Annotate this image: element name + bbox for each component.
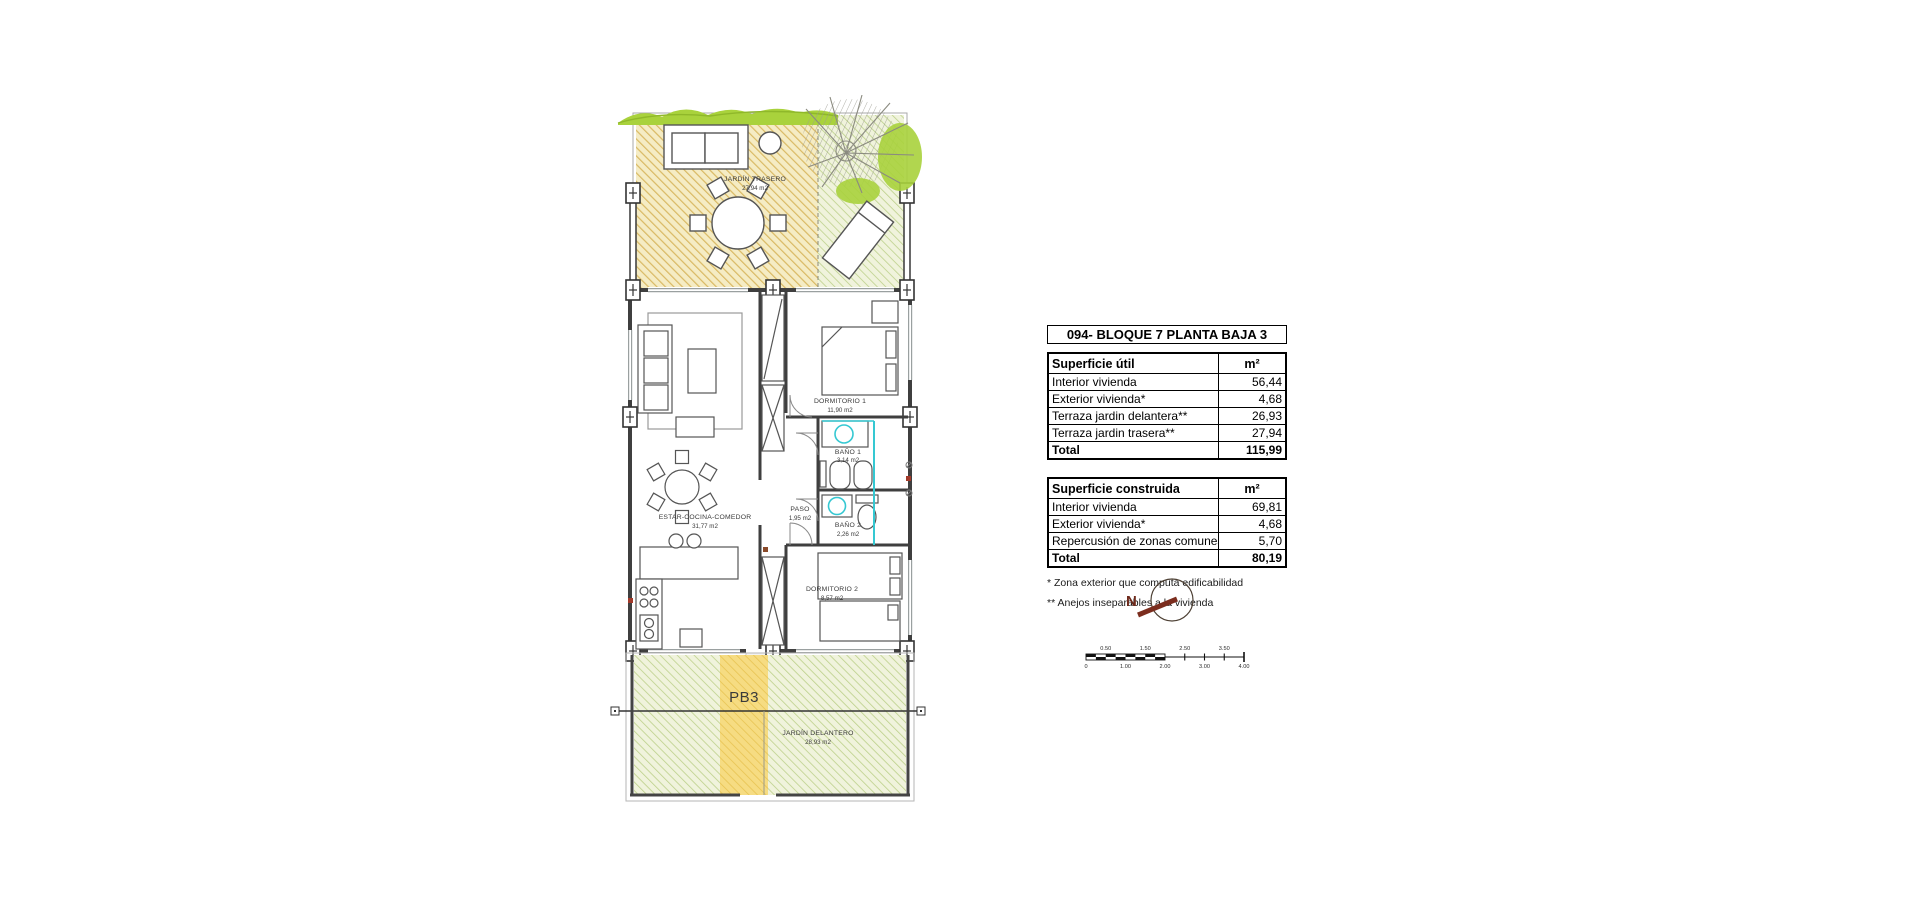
- total-label: Total: [1048, 550, 1219, 568]
- row-label: Exterior vivienda*: [1048, 391, 1219, 408]
- table-row: Exterior vivienda* 4,68: [1048, 391, 1286, 408]
- label-paso: PASO: [790, 506, 809, 513]
- garden-sofa: [664, 125, 748, 169]
- cons-header-unit: m²: [1219, 478, 1287, 499]
- table-row: Repercusión de zonas comunes 5,70: [1048, 533, 1286, 550]
- valve-marker: [906, 476, 911, 481]
- access-path: [720, 655, 768, 795]
- building: ESTAR-COCINA-COMEDOR 31,77 m2 DORMITORIO…: [623, 280, 917, 661]
- row-value: 56,44: [1219, 374, 1287, 391]
- scale-label: 0.50: [1100, 646, 1111, 652]
- north-compass-icon: N: [1126, 579, 1193, 621]
- compass-needle: [1138, 599, 1177, 615]
- row-label: Interior vivienda: [1048, 499, 1219, 516]
- area-jardin-delantero: 28,93 m2: [805, 739, 831, 746]
- area-bano1: 3,14 m2: [837, 457, 860, 464]
- row-value: 26,93: [1219, 408, 1287, 425]
- row-label: Interior vivienda: [1048, 374, 1219, 391]
- tv-unit: [676, 417, 714, 437]
- scale-label: 3.50: [1219, 646, 1230, 652]
- front-garden: PB3 JARDÍN DELANTERO 28,93 m2: [611, 653, 925, 801]
- label-bano2: BAÑO 2: [835, 520, 861, 529]
- drawing-symbols: N 0.50 1.: [1060, 570, 1280, 680]
- scale-label: 1.00: [1120, 664, 1131, 670]
- sofa: [638, 325, 672, 413]
- table-row: Exterior vivienda* 4,68: [1048, 516, 1286, 533]
- cons-header-label: Superficie construida: [1048, 478, 1219, 499]
- sink-1: [835, 425, 853, 443]
- label-jardin-delantero: JARDÍN DELANTERO: [782, 728, 853, 737]
- util-header-label: Superficie útil: [1048, 353, 1219, 374]
- dresser: [872, 301, 898, 323]
- rear-garden: JARDÍN TRASERO 27,94 m2: [618, 95, 922, 290]
- floor-plan: JARDÍN TRASERO 27,94 m2: [600, 95, 932, 810]
- total-label: Total: [1048, 442, 1219, 460]
- scale-label: 4.00: [1239, 664, 1250, 670]
- unit-label: PB3: [729, 689, 759, 706]
- row-value: 27,94: [1219, 425, 1287, 442]
- superficie-util-table: Superficie útil m² Interior vivienda 56,…: [1047, 352, 1287, 460]
- info-panel: 094- BLOQUE 7 PLANTA BAJA 3 Superficie ú…: [1047, 325, 1287, 609]
- area-jardin-trasero: 27,94 m2: [742, 185, 768, 192]
- row-label: Terraza jardin trasera**: [1048, 425, 1219, 442]
- area-bano2: 2,26 m2: [837, 531, 860, 538]
- row-label: Terraza jardin delantera**: [1048, 408, 1219, 425]
- meter-marker: [628, 598, 633, 603]
- scale-label: 2.00: [1160, 664, 1171, 670]
- row-value: 69,81: [1219, 499, 1287, 516]
- label-estar: ESTAR-COCINA-COMEDOR: [659, 514, 752, 521]
- shower-column: [820, 461, 826, 487]
- table-row: Interior vivienda 56,44: [1048, 374, 1286, 391]
- toilet-1: [830, 461, 850, 489]
- area-dormitorio2: 8,57 m2: [821, 595, 844, 602]
- scale-bar-checkered: [1086, 654, 1165, 660]
- row-value: 5,70: [1219, 533, 1287, 550]
- scale-label: 3.00: [1199, 664, 1210, 670]
- table-row: Terraza jardin trasera** 27,94: [1048, 425, 1286, 442]
- table-header-row: Superficie útil m²: [1048, 353, 1286, 374]
- table-total-row: Total 115,99: [1048, 442, 1286, 460]
- table-row: Interior vivienda 69,81: [1048, 499, 1286, 516]
- drawing-sheet: JARDÍN TRASERO 27,94 m2: [0, 0, 1920, 920]
- util-header-unit: m²: [1219, 353, 1287, 374]
- table-row: Terraza jardin delantera** 26,93: [1048, 408, 1286, 425]
- superficie-construida-table: Superficie construida m² Interior vivien…: [1047, 477, 1287, 568]
- row-label: Repercusión de zonas comunes: [1048, 533, 1219, 550]
- scale-bar-line: [1165, 652, 1244, 662]
- row-value: 4,68: [1219, 516, 1287, 533]
- front-garden-lawn: [634, 655, 906, 795]
- sink-2: [829, 498, 846, 515]
- total-value: 115,99: [1219, 442, 1287, 460]
- tree-foliage: [878, 123, 922, 191]
- table-total-row: Total 80,19: [1048, 550, 1286, 568]
- area-dormitorio1: 11,90 m2: [827, 407, 853, 414]
- scale-label: 2.50: [1179, 646, 1190, 652]
- scale-label: 0: [1084, 664, 1087, 670]
- area-paso: 1,95 m2: [789, 515, 812, 522]
- north-label: N: [1126, 593, 1137, 610]
- label-dormitorio1: DORMITORIO 1: [814, 398, 866, 405]
- bidet-1: [854, 461, 872, 489]
- row-label: Exterior vivienda*: [1048, 516, 1219, 533]
- total-value: 80,19: [1219, 550, 1287, 568]
- plan-title: 094- BLOQUE 7 PLANTA BAJA 3: [1047, 325, 1287, 344]
- scale-bar: 0.50 1.50 2.50 3.50 0 1.00 2.00 3.00 4.0…: [1084, 646, 1249, 670]
- label-jardin-trasero: JARDÍN TRASERO: [724, 174, 786, 183]
- table-header-row: Superficie construida m²: [1048, 478, 1286, 499]
- garden-side-table: [759, 132, 781, 154]
- label-bano1: BAÑO 1: [835, 447, 861, 456]
- coffee-table: [688, 349, 716, 393]
- scale-label: 1.50: [1140, 646, 1151, 652]
- row-value: 4,68: [1219, 391, 1287, 408]
- area-estar: 31,77 m2: [692, 523, 718, 530]
- label-dormitorio2: DORMITORIO 2: [806, 586, 858, 593]
